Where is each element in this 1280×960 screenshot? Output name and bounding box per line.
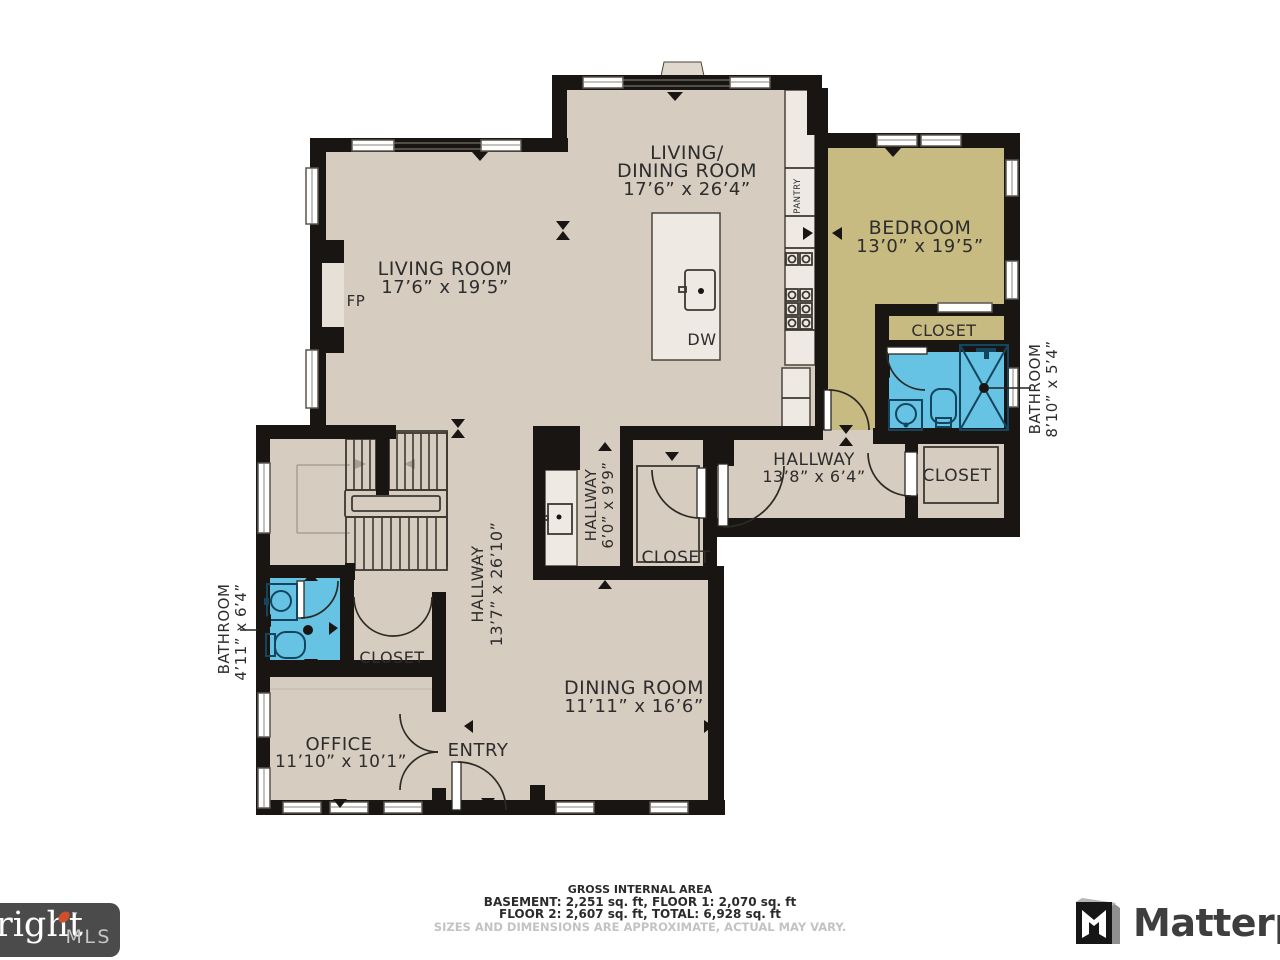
bathroom-left-label: BATHROOM bbox=[215, 584, 233, 675]
hallway-main-dims: 13’7” x 26’10” bbox=[487, 522, 506, 647]
floor-plan-page: LIVING/ DINING ROOM 17’6” x 26’4” LIVING… bbox=[0, 0, 1280, 960]
bathroom-right-label: BATHROOM bbox=[1026, 344, 1044, 435]
fridge-icon bbox=[782, 368, 810, 428]
dishwasher-label: DW bbox=[687, 330, 716, 349]
mls-suffix: MLS bbox=[65, 926, 112, 948]
dining-room-dims: 11’11” x 16’6” bbox=[564, 696, 703, 717]
office-dims: 11’10” x 10’1” bbox=[275, 752, 407, 772]
matterport-wordmark: Matterport bbox=[1133, 901, 1280, 945]
hallway-mid-dims: 6’0” x 9’9” bbox=[599, 461, 617, 548]
mls-trademark: ™ bbox=[71, 911, 79, 920]
hallway-right-dims: 13’8” x 6’4” bbox=[762, 467, 865, 486]
living-room-dims: 17’6” x 19’5” bbox=[381, 277, 508, 298]
fireplace-label: FP bbox=[347, 292, 366, 310]
fireplace-icon bbox=[312, 240, 344, 353]
closet-mid-label: CLOSET bbox=[641, 548, 710, 568]
matterport-logo: Matterport bbox=[1070, 895, 1280, 951]
chimney-bump bbox=[661, 62, 704, 76]
floor-plan-drawing: LIVING/ DINING ROOM 17’6” x 26’4” LIVING… bbox=[0, 0, 1280, 960]
bathroom-right-dims: 8’10” x 5’4” bbox=[1043, 340, 1061, 437]
hallway-main-label: HALLWAY bbox=[468, 545, 487, 622]
scan-dot bbox=[303, 625, 313, 635]
bedroom-dims: 13’0” x 19’5” bbox=[856, 236, 983, 257]
matterport-m-icon bbox=[1070, 895, 1124, 951]
living-dining-dims: 17’6” x 26’4” bbox=[623, 179, 750, 200]
hallway-mid-label: HALLWAY bbox=[582, 468, 600, 541]
entry-label: ENTRY bbox=[448, 740, 509, 761]
closet-bedroom-label: CLOSET bbox=[911, 321, 976, 340]
closet-left-label: CLOSET bbox=[359, 648, 424, 667]
pantry-label: PANTRY bbox=[793, 178, 803, 214]
closet-right-label: CLOSET bbox=[922, 466, 991, 486]
hall-vanity bbox=[543, 470, 577, 566]
bright-mls-logo: right ™ MLS bbox=[0, 903, 120, 957]
bathroom-left-dims: 4’11” x 6’4” bbox=[232, 583, 250, 680]
